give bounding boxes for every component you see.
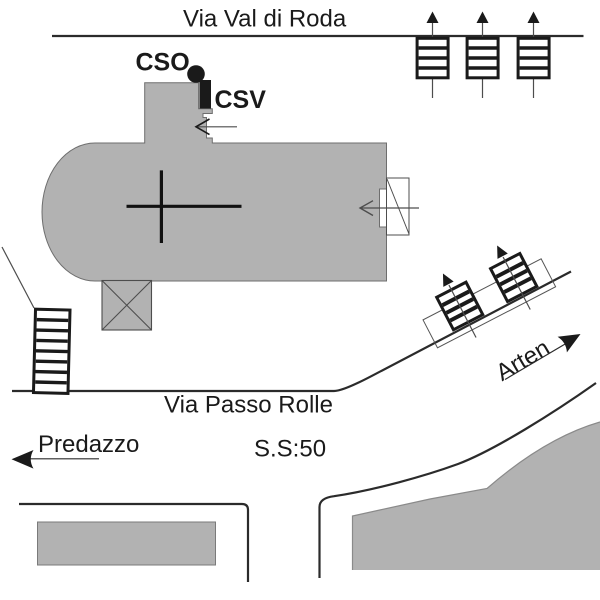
svg-text:CSO: CSO [136, 49, 190, 77]
svg-text:CSV: CSV [215, 86, 267, 114]
svg-text:S.S:50: S.S:50 [254, 436, 326, 463]
svg-text:Via Val di Roda: Via Val di Roda [183, 6, 347, 33]
svg-text:Predazzo: Predazzo [38, 431, 139, 458]
svg-text:Via Passo Rolle: Via Passo Rolle [164, 392, 333, 419]
